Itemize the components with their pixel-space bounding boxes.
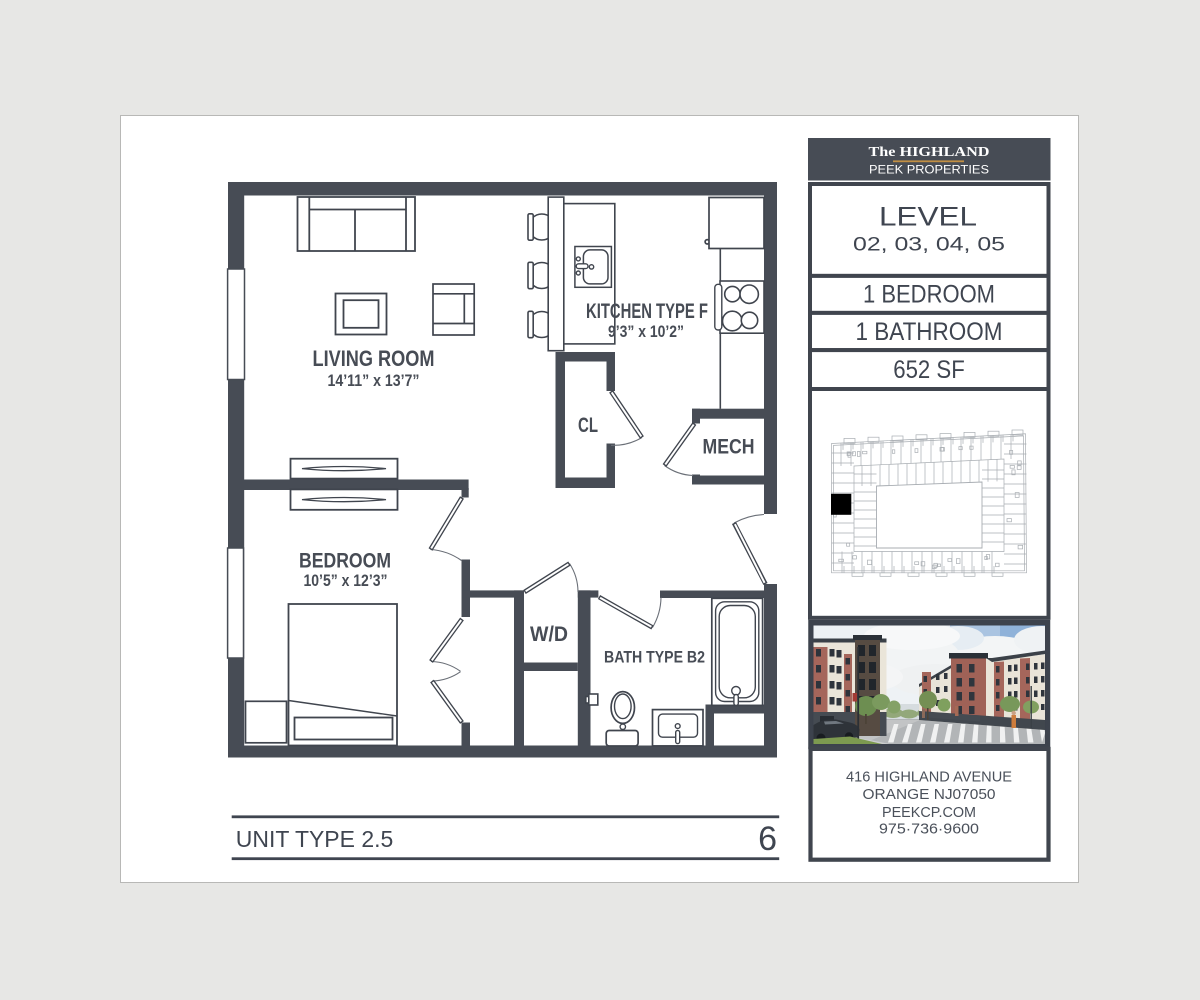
svg-text:MECH: MECH: [703, 436, 755, 459]
svg-text:ORANGE NJ07050: ORANGE NJ07050: [863, 786, 996, 803]
svg-text:10’5” x 12’3”: 10’5” x 12’3”: [304, 572, 388, 590]
svg-text:BATH TYPE B2: BATH TYPE B2: [604, 647, 705, 666]
svg-text:CL: CL: [578, 414, 598, 437]
svg-text:6: 6: [758, 820, 777, 858]
svg-text:BEDROOM: BEDROOM: [299, 550, 391, 573]
svg-text:14’11” x 13’7”: 14’11” x 13’7”: [328, 372, 420, 390]
svg-text:LIVING ROOM: LIVING ROOM: [313, 346, 435, 371]
svg-text:PEEKCP.COM: PEEKCP.COM: [882, 804, 976, 821]
svg-text:UNIT TYPE 2.5: UNIT TYPE 2.5: [236, 826, 393, 852]
svg-text:1 BATHROOM: 1 BATHROOM: [856, 318, 1003, 346]
svg-text:652 SF: 652 SF: [893, 356, 965, 384]
svg-text:1 BEDROOM: 1 BEDROOM: [863, 281, 995, 309]
svg-text:LEVEL: LEVEL: [879, 201, 977, 231]
svg-text:416 HIGHLAND AVENUE: 416 HIGHLAND AVENUE: [846, 769, 1012, 786]
svg-text:02, 03, 04, 05: 02, 03, 04, 05: [853, 234, 1005, 256]
svg-text:The HIGHLAND: The HIGHLAND: [869, 145, 990, 160]
svg-text:975·736·9600: 975·736·9600: [879, 821, 979, 838]
svg-text:KITCHEN TYPE F: KITCHEN TYPE F: [586, 300, 708, 323]
svg-text:PEEK PROPERTIES: PEEK PROPERTIES: [869, 164, 989, 176]
svg-text:W/D: W/D: [530, 623, 568, 646]
svg-text:9’3” x 10’2”: 9’3” x 10’2”: [608, 323, 684, 341]
